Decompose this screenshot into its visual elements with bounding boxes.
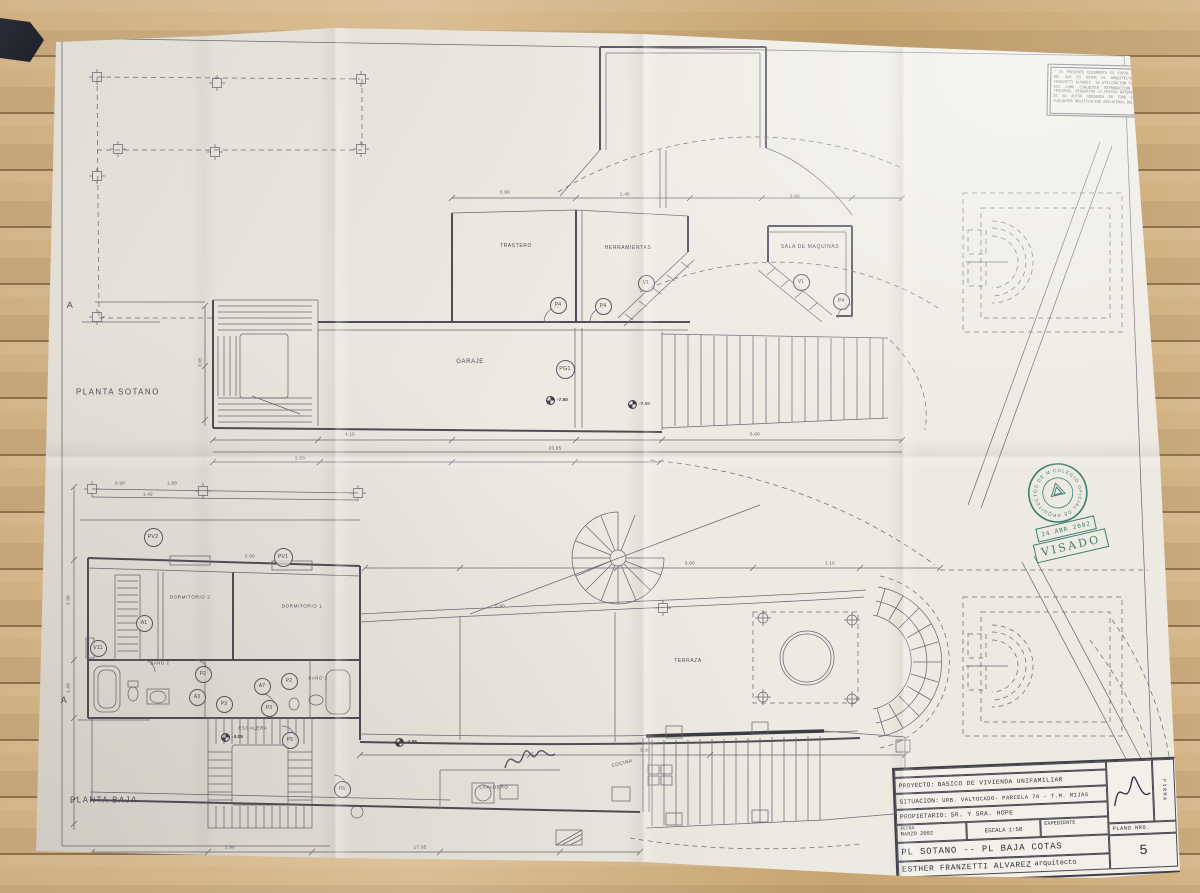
plano-number: 5 [1139,843,1148,859]
room-label-bano2: BAÑO 2 [151,661,170,666]
room-label-escalera: ESCALERA [238,726,267,731]
level-symbol [628,400,637,409]
dim-label: 1.80 [167,481,177,486]
marker-a7: A7 [254,678,271,695]
marker-a3: A3 [189,689,206,706]
escala-value: 1:50 [1008,825,1022,833]
room-label-garaje: GARAJE [456,359,484,365]
door-marker-p6: P6 [334,781,351,798]
section-letter-sotano: A [67,300,74,310]
dim-label: 17.35 [414,845,427,850]
dim-label: 1.42 [143,492,153,497]
level-marker-terraza: -4.55 [395,738,417,747]
dim-label: 2.80 [295,456,305,461]
door-marker-p3-2: P3 [261,700,278,717]
propietario-label: PROPIETARIO: [900,812,948,821]
sotano-linework [56,47,938,465]
room-label-dormitorio2: DORMITORIO 2 [170,595,211,600]
dim-label: 23.95 [549,446,562,451]
room-label-trastero: TRASTERO [500,243,532,249]
title-block-signature-cell [1106,760,1154,824]
title-block-firma-cell: FIRMA [1152,759,1176,822]
plano-label: PLANO NRO. [1109,822,1175,834]
escala-label: ESCALA [985,826,1006,834]
dim-label: 2.10 [825,561,835,566]
door-marker-p4-1: P4 [550,297,567,314]
plan-title-baja: PLANTA BAJA [70,796,138,805]
dim-label: 1.90 [225,845,235,850]
architect-name: ESTHER FRANZETTI ALVAREZ [902,860,1032,874]
window-marker-pv2: PV2 [144,528,163,547]
dim-label: 1.40 [66,683,71,693]
dim-label: 4.10 [345,432,355,437]
proyecto-value: BASICO DE VIVIENDA UNIFAMILIAR [937,776,1063,788]
door-marker-pg1: PG1 [556,360,575,379]
level-marker-garaje-2: -7.50 [628,400,650,409]
dim-label: 3.05 [198,357,203,367]
level-marker-escalera: -3.05 [221,733,243,742]
door-marker-p4-2: P4 [595,298,612,315]
title-block-plano-number-cell: 5 [1109,833,1178,870]
room-label-bano1: BAÑO 1 [309,676,328,681]
marker-a1: A1 [136,615,153,632]
dim-label: 5.90 [495,604,505,609]
dim-label: 3.90 [66,595,71,605]
firma-label: FIRMA [1161,779,1168,802]
plan-title-sotano: PLANTA SOTANO [76,388,160,397]
architect-signature [1107,761,1154,824]
copyright-note-text: " EL PRESENTE DOCUMENTO ES COPIA DE SU O… [1049,66,1168,116]
window-marker-pv1: PV1 [274,548,293,567]
room-label-dormitorio1: DORMITORIO 1 [282,604,323,609]
door-marker-p2-1: P2 [195,666,212,683]
section-letter-baja: A [61,695,68,705]
door-marker-p2-2: P2 [281,673,298,690]
dim-label: 5.90 [245,554,255,559]
window-marker-v1-2: V1 [793,274,810,291]
copyright-note-box: " EL PRESENTE DOCUMENTO ES COPIA DE SU O… [1046,64,1170,119]
door-marker-p4-3: P4 [833,293,850,310]
expediente-label: EXPEDIENTE [1041,817,1107,828]
level-symbol [546,396,555,405]
situacion-value: URB. VALTOCADO- PARCELA 70 - T.M. MIJAS [942,791,1089,804]
blueprint-sheet: PLANTA SOTANO PLANTA BAJA A A TRASTERO H… [0,0,1200,893]
title-block: PROYECTO:BASICO DE VIVIENDA UNIFAMILIAR … [892,756,1184,883]
level-symbol [221,733,230,742]
dim-label: 5.60 [685,561,695,566]
room-label-terraza: TERRAZA [674,658,702,664]
dim-label: 2.45 [620,192,630,197]
fecha-value: MARZO 2002 [898,829,966,838]
door-marker-p3-1: P3 [216,696,233,713]
room-label-lavadero: LAVADERO [479,785,508,790]
proyecto-label: PROYECTO: [899,781,935,789]
plan-linework [0,0,1200,893]
dim-label: 3.90 [640,748,650,753]
room-label-herramientas: HERRAMIENTAS [605,245,652,251]
dim-label: 5.90 [500,190,510,195]
situacion-label: SITUACION: [899,797,939,806]
level-symbol [395,738,404,747]
architect-role: arquitecto [1034,859,1076,869]
room-label-sala-maquinas: SALA DE MAQUINAS [781,244,840,250]
level-marker-garaje-1: -7.50 [546,396,568,405]
dim-label: 0.90 [115,481,125,486]
window-marker-v1-1: V1 [638,275,655,292]
dim-label: 5.90 [790,194,800,199]
door-marker-p5: P5 [282,732,299,749]
propietario-value: SR. Y SRA. HOPE [951,809,1014,819]
sheet-frame-lines [62,38,1152,846]
photo-scene: PLANTA SOTANO PLANTA BAJA A A TRASTERO H… [0,0,1200,893]
dark-corner-object [0,0,50,70]
dim-label: 5.00 [750,432,760,437]
window-marker-v11: V11 [90,640,107,657]
